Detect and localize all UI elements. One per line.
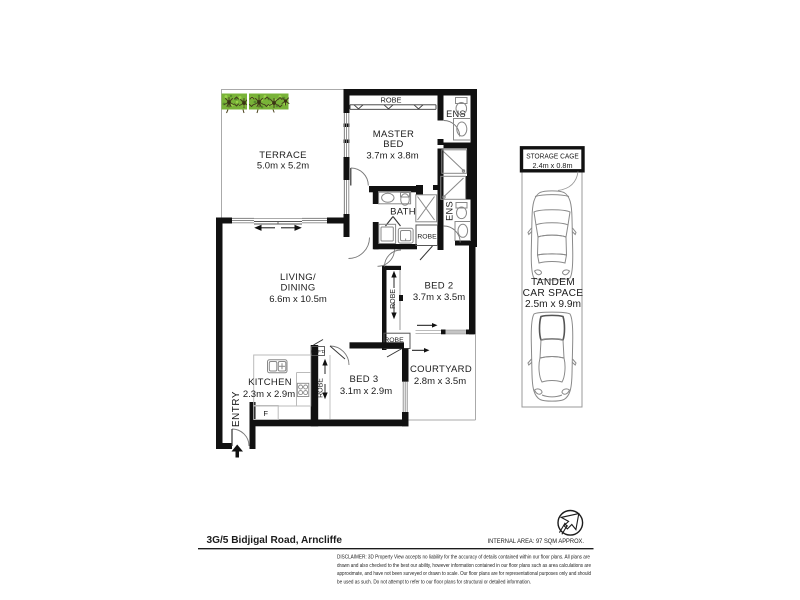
svg-text:BED 2: BED 2 — [425, 281, 454, 292]
svg-text:ENTRY: ENTRY — [231, 391, 242, 427]
svg-text:ROBE: ROBE — [417, 233, 437, 240]
svg-text:CUP'D: CUP'D — [311, 349, 326, 354]
svg-text:5.0m x 5.2m: 5.0m x 5.2m — [257, 161, 309, 172]
svg-text:COURTYARD: COURTYARD — [410, 364, 472, 375]
svg-text:ROBE: ROBE — [318, 378, 325, 398]
svg-text:INTERNAL AREA: 97 SQM APPROX.: INTERNAL AREA: 97 SQM APPROX. — [488, 538, 585, 545]
svg-text:TERRACE: TERRACE — [259, 150, 307, 161]
svg-text:CAR SPACE: CAR SPACE — [523, 288, 584, 299]
svg-text:DINING: DINING — [280, 282, 315, 293]
svg-text:2.8m x 3.5m: 2.8m x 3.5m — [414, 376, 466, 387]
svg-text:2.4m x 0.8m: 2.4m x 0.8m — [533, 161, 573, 170]
svg-text:F: F — [263, 409, 268, 418]
svg-text:ROBE: ROBE — [390, 289, 397, 309]
svg-text:2.3m x 2.9m: 2.3m x 2.9m — [243, 389, 295, 400]
svg-text:KITCHEN: KITCHEN — [248, 377, 292, 388]
svg-text:BED 3: BED 3 — [350, 374, 379, 385]
svg-text:approximate, and have not been: approximate, and have not been surveyed … — [337, 571, 591, 577]
svg-text:3G/5 Bidjigal Road, Arncliffe: 3G/5 Bidjigal Road, Arncliffe — [207, 535, 343, 546]
svg-text:LIVING/: LIVING/ — [280, 272, 316, 283]
svg-text:3.7m x 3.5m: 3.7m x 3.5m — [413, 292, 465, 303]
svg-text:be used as such. Do not attemp: be used as such. Do not attempt to refer… — [337, 579, 531, 585]
svg-text:2.5m x 9.9m: 2.5m x 9.9m — [525, 299, 581, 310]
svg-text:DISCLAIMER: 3D Property View a: DISCLAIMER: 3D Property View accepts no … — [337, 555, 590, 561]
svg-text:ROBE: ROBE — [384, 337, 404, 344]
svg-text:drawn and also checked to the: drawn and also checked to the best our a… — [337, 563, 591, 569]
svg-text:BED: BED — [383, 139, 403, 150]
svg-text:ROBE: ROBE — [381, 96, 402, 105]
svg-text:ENS: ENS — [445, 201, 455, 221]
svg-text:BATH: BATH — [390, 207, 416, 218]
svg-text:STORAGE CAGE: STORAGE CAGE — [526, 152, 579, 161]
svg-text:3.1m x 2.9m: 3.1m x 2.9m — [340, 386, 392, 397]
svg-text:3.7m x 3.8m: 3.7m x 3.8m — [366, 151, 418, 162]
svg-text:6.6m x 10.5m: 6.6m x 10.5m — [269, 294, 327, 305]
svg-text:ENS: ENS — [446, 109, 466, 119]
svg-text:TANDEM: TANDEM — [531, 277, 575, 288]
